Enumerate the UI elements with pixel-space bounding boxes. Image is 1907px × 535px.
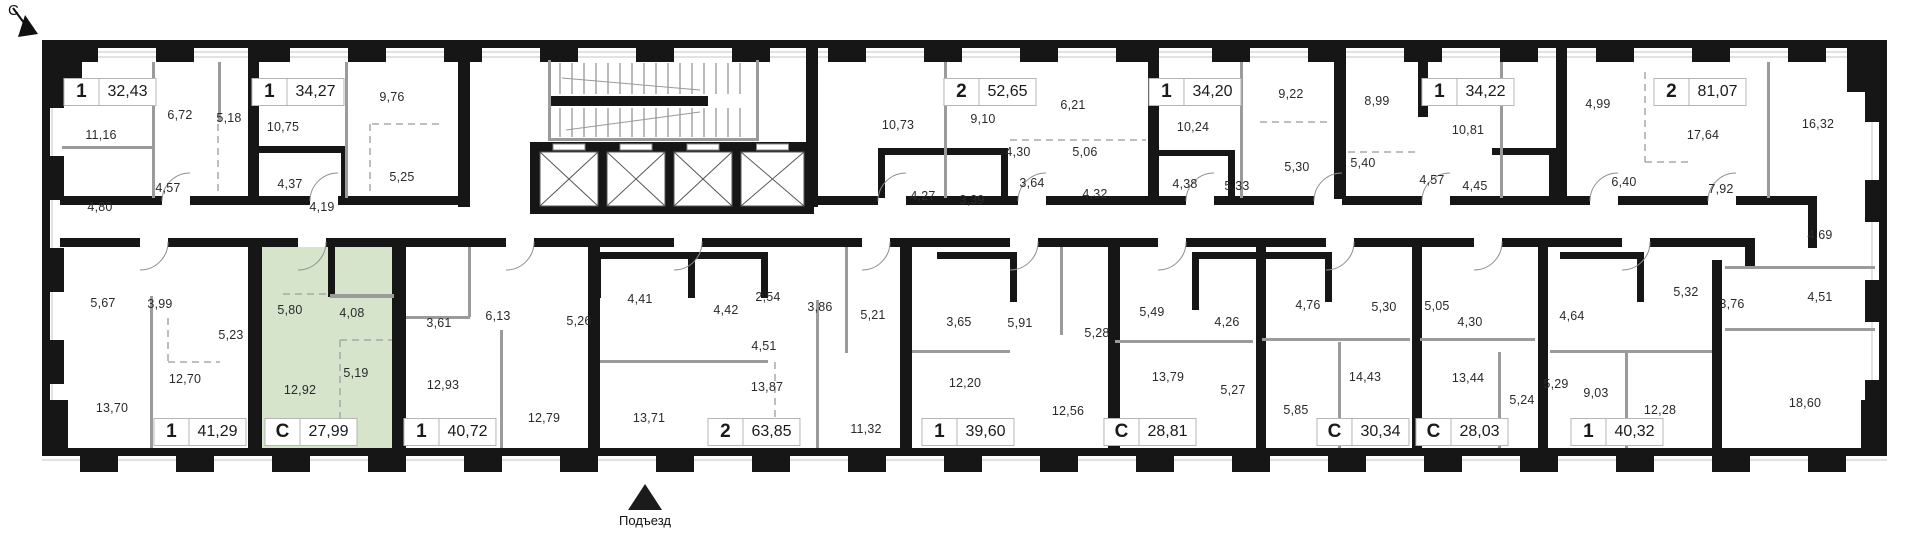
room-area-label: 4,32 — [1082, 187, 1107, 201]
entrance-arrow-icon — [628, 484, 662, 510]
apartment-badge[interactable]: 263,85 — [707, 418, 800, 446]
room-area-label: 9,03 — [1583, 386, 1608, 400]
room-area-label: 3,61 — [426, 316, 451, 330]
room-area-label: 9,10 — [970, 112, 995, 126]
room-area-label: 5,21 — [860, 308, 885, 322]
room-area-label: 5,26 — [566, 314, 591, 328]
room-area-label: 4,42 — [713, 303, 738, 317]
room-area-label: 8,99 — [1364, 94, 1389, 108]
room-area-label: 11,16 — [85, 128, 116, 142]
apartment-area: 27,99 — [300, 419, 356, 445]
room-area-label: 5,32 — [1673, 285, 1698, 299]
room-area-label: 9,76 — [379, 90, 404, 104]
room-area-label: 4,08 — [339, 306, 364, 320]
room-area-label: 4,26 — [1214, 315, 1239, 329]
apartment-badge[interactable]: 139,60 — [921, 418, 1014, 446]
north-arrow-icon — [0, 0, 60, 60]
apartment-rooms-type: С — [265, 419, 300, 445]
room-area-label: 12,70 — [169, 372, 201, 386]
apartment-badge[interactable]: 281,07 — [1653, 78, 1746, 106]
room-area-label: 6,13 — [485, 309, 510, 323]
apartment-rooms-type: 1 — [922, 419, 957, 445]
entrance-label: Подъезд — [619, 513, 671, 528]
room-area-label: 12,56 — [1052, 404, 1084, 418]
room-area-label: 13,87 — [751, 380, 783, 394]
apartment-badge[interactable]: 134,27 — [251, 78, 344, 106]
room-area-label: 4,30 — [1005, 145, 1030, 159]
room-area-label: 5,85 — [1283, 403, 1308, 417]
apartment-area: 34,22 — [1457, 79, 1513, 105]
room-area-label: 6,72 — [167, 108, 192, 122]
apartment-badge[interactable]: 140,32 — [1570, 418, 1663, 446]
room-area-label: 5,30 — [1284, 160, 1309, 174]
room-area-label: 5,25 — [389, 170, 414, 184]
apartment-area: 40,32 — [1606, 419, 1662, 445]
apartment-badge[interactable]: С28,03 — [1415, 418, 1508, 446]
apartment-area: 81,07 — [1689, 79, 1745, 105]
apartment-badge[interactable]: 141,29 — [153, 418, 246, 446]
apartment-rooms-type: 1 — [404, 419, 439, 445]
apartment-rooms-type: С — [1416, 419, 1451, 445]
apartment-rooms-type: С — [1104, 419, 1139, 445]
room-area-label: 4,76 — [1295, 298, 1320, 312]
apartment-rooms-type: 1 — [1571, 419, 1606, 445]
room-area-label: 10,24 — [1177, 120, 1209, 134]
room-area-label: 16,32 — [1802, 117, 1834, 131]
room-area-label: 5,24 — [1509, 393, 1534, 407]
room-area-label: 12,79 — [528, 411, 560, 425]
apartment-rooms-type: 1 — [64, 79, 99, 105]
room-area-label: 17,64 — [1687, 128, 1719, 142]
room-area-label: 3,65 — [946, 315, 971, 329]
room-area-label: 12,92 — [284, 383, 316, 397]
apartment-area: 52,65 — [979, 79, 1035, 105]
room-area-label: 4,51 — [1807, 290, 1832, 304]
room-area-label: 5,05 — [1424, 299, 1449, 313]
room-area-label: 3,64 — [1019, 176, 1044, 190]
apartment-rooms-type: 1 — [154, 419, 189, 445]
room-area-label: 4,27 — [910, 189, 935, 203]
apartment-badge[interactable]: С28,81 — [1103, 418, 1196, 446]
floor-plan: С Подъезд 11,166,725,184,804,5710,754,37… — [0, 0, 1907, 535]
apartment-badge[interactable]: С30,34 — [1316, 418, 1409, 446]
room-area-label: 4,99 — [1585, 97, 1610, 111]
room-area-label: 13,79 — [1152, 370, 1184, 384]
apartment-area: 39,60 — [957, 419, 1013, 445]
room-area-label: 4,19 — [309, 200, 334, 214]
apartment-area: 34,20 — [1184, 79, 1240, 105]
room-area-label: 7,92 — [1708, 182, 1733, 196]
room-area-label: 4,30 — [1457, 315, 1482, 329]
room-area-label: 4,57 — [155, 181, 180, 195]
apartment-badge[interactable]: С27,99 — [264, 418, 357, 446]
room-area-label: 4,80 — [87, 200, 112, 214]
room-area-label: 4,37 — [277, 177, 302, 191]
room-area-label: 4,51 — [751, 339, 776, 353]
room-area-label: 5,29 — [1543, 377, 1568, 391]
room-area-label: 5,80 — [277, 303, 302, 317]
apartment-area: 28,81 — [1139, 419, 1195, 445]
apartment-area: 63,85 — [743, 419, 799, 445]
apartment-badge[interactable]: 140,72 — [403, 418, 496, 446]
apartment-area: 40,72 — [439, 419, 495, 445]
apartment-rooms-type: С — [1317, 419, 1352, 445]
room-area-label: 5,91 — [1007, 316, 1032, 330]
room-area-label: 11,32 — [850, 422, 881, 436]
room-area-label: 5,40 — [1350, 156, 1375, 170]
room-area-label: 4,38 — [1172, 177, 1197, 191]
room-area-label: 10,81 — [1452, 123, 1484, 137]
room-area-label: 5,28 — [1084, 326, 1109, 340]
apartment-rooms-type: 2 — [1654, 79, 1689, 105]
apartment-area: 34,27 — [287, 79, 343, 105]
room-area-label: 3,39 — [959, 193, 984, 207]
apartment-badge[interactable]: 134,20 — [1148, 78, 1241, 106]
room-area-label: 4,45 — [1462, 179, 1487, 193]
apartment-rooms-type: 1 — [1422, 79, 1457, 105]
apartment-badge[interactable]: 134,22 — [1421, 78, 1514, 106]
room-area-label: 5,49 — [1139, 305, 1164, 319]
room-area-label: 2,54 — [755, 290, 780, 304]
room-area-label: 3,86 — [807, 300, 832, 314]
room-area-label: 5,23 — [218, 328, 243, 342]
room-area-label: 4,57 — [1419, 173, 1444, 187]
room-area-label: 9,22 — [1278, 87, 1303, 101]
room-area-label: 5,06 — [1072, 145, 1097, 159]
room-area-label: 5,67 — [90, 296, 115, 310]
apartment-badge[interactable]: 252,65 — [943, 78, 1036, 106]
apartment-area: 30,34 — [1352, 419, 1408, 445]
apartment-area: 28,03 — [1451, 419, 1507, 445]
room-area-label: 14,43 — [1349, 370, 1381, 384]
room-area-label: 12,20 — [949, 376, 981, 390]
apartment-rooms-type: 1 — [252, 79, 287, 105]
room-area-label: 13,70 — [96, 401, 128, 415]
room-area-label: 5,18 — [216, 111, 241, 125]
room-area-label: 13,44 — [1452, 371, 1484, 385]
room-area-label: 4,64 — [1559, 309, 1584, 323]
room-area-label: 13,71 — [633, 411, 665, 425]
room-area-label: 4,41 — [627, 292, 652, 306]
apartment-rooms-type: 1 — [1149, 79, 1184, 105]
room-area-label: 5,33 — [1224, 179, 1249, 193]
room-area-label: 12,93 — [427, 378, 459, 392]
room-area-label: 12,28 — [1644, 403, 1676, 417]
room-area-label: 6,21 — [1060, 98, 1085, 112]
apartment-rooms-type: 2 — [944, 79, 979, 105]
apartment-rooms-type: 2 — [708, 419, 743, 445]
entrance-marker: Подъезд — [619, 484, 671, 528]
room-area-label: 6,40 — [1611, 175, 1636, 189]
room-area-label: 3,99 — [147, 297, 172, 311]
room-area-label: 5,19 — [343, 366, 368, 380]
apartment-badge[interactable]: 132,43 — [63, 78, 156, 106]
apartment-area: 32,43 — [99, 79, 155, 105]
apartment-area: 41,29 — [189, 419, 245, 445]
room-area-label: 3,76 — [1719, 297, 1744, 311]
room-area-label: 5,27 — [1220, 383, 1245, 397]
room-area-label: 5,30 — [1371, 300, 1396, 314]
room-area-label: 10,75 — [267, 120, 299, 134]
room-area-label: 10,73 — [882, 118, 914, 132]
room-area-label: 18,60 — [1789, 396, 1821, 410]
room-area-label: 4,69 — [1807, 228, 1832, 242]
